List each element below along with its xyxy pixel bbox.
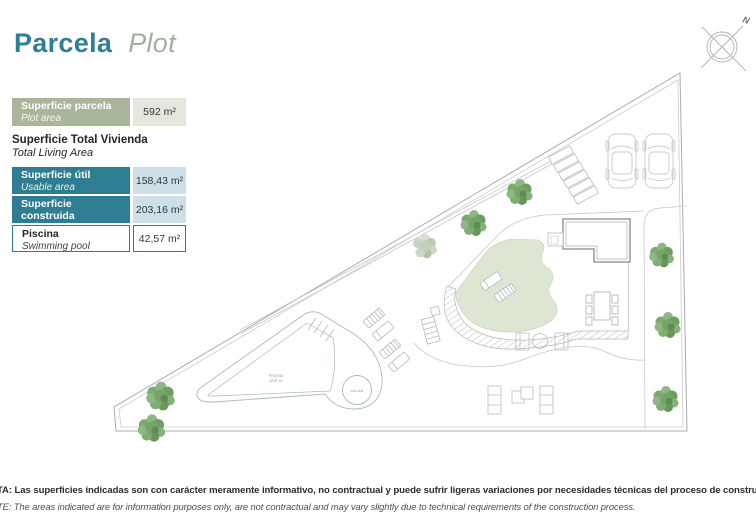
jacuzzi-label: JACUZZI [351,389,364,393]
site-plan: PISCINA 42,57 m² JACUZZI N [0,0,756,528]
footer-note-en: TE: The areas indicated are for informat… [0,501,635,512]
pool-plan-area: 42,57 m² [269,379,283,383]
compass-n-label: N [741,14,751,26]
north-arrow-icon [701,26,746,71]
dining-set-icon [586,292,618,325]
footer-note-es: TA: Las superficies indicadas son con ca… [0,485,756,496]
pool-plan-label: PISCINA [269,374,284,378]
page: { "title": { "es": "Parcela", "en": "Plo… [0,0,756,528]
